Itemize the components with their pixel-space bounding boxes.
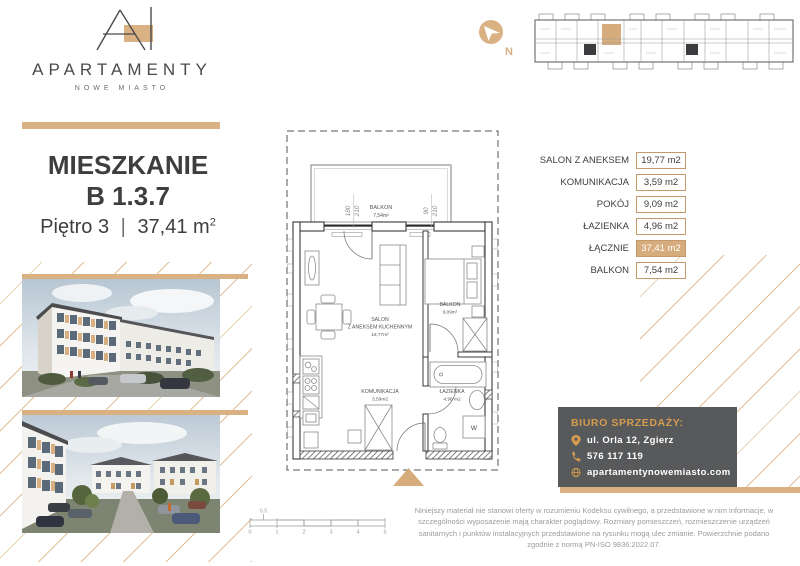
hallway-area: 3,59m2 [372,397,388,403]
sales-office-card: BIURO SPRZEDAŻY: ul. Orla 12, Zgierz 576… [558,407,737,487]
staircase-block [584,44,596,55]
compass-north-icon: N [472,12,518,60]
phone-icon [571,451,581,462]
window2-height-dim: 210 [432,205,439,217]
location-pin-icon [571,435,581,446]
bedroom-label: BALKON [439,302,460,308]
table-row: KOMUNIKACJA 3,59 m2 [520,174,686,191]
living-room-label-1: SALON [371,317,389,323]
scale-tick-0: 0 [248,530,251,536]
compass-north-label: N [505,46,513,58]
window2-width-dim: 90 [423,207,430,215]
room-label: ŁĄCZNIE [589,243,629,254]
balcony-area: 7,54m² [373,213,389,219]
room-label: BALKON [590,265,629,276]
flyer-page: APARTAMENTY NOWE MIASTO MIESZKANIE B 1.3… [0,0,800,566]
highlighted-unit [602,24,621,45]
title-divider: | [121,216,126,238]
window1-width-dim: 180 [345,205,352,216]
hallway-label: KOMUNIKACJA [361,389,399,395]
gold-divider [22,122,220,129]
sales-office-phone-line: 576 117 119 [571,451,737,462]
table-row-total: ŁĄCZNIE 37,41 m2 [520,240,686,257]
bedroom-area: 9,09m² [443,310,458,315]
brand-name: APARTAMENTY [20,60,224,80]
area-exponent: 2 [210,217,216,229]
entrance-marker-triangle [393,468,424,486]
table-row: BALKON 7,54 m2 [520,262,686,279]
scale-tick-2: 2 [302,530,305,536]
table-row: ŁAZIENKA 4,96 m2 [520,218,686,235]
building-render-photo-2 [22,415,220,533]
scale-bar: 0.5 0 1 2 3 4 5 [246,506,392,536]
floor-label: Piętro 3 [40,216,109,238]
bathroom-area: 4,96 m2 [443,397,461,403]
sales-office-heading: BIURO SPRZEDAŻY: [571,417,737,429]
living-room-area: 19,77m² [371,332,389,338]
balcony-label: BALKON [370,205,393,211]
brand-tagline: NOWE MIASTO [20,85,224,92]
sales-office-phone: 576 117 119 [587,451,643,462]
room-label: ŁAZIENKA [583,221,629,232]
floor-and-area: Piętro 3 | 37,41 m2 [8,216,248,239]
room-area-value: 4,96 m2 [636,218,686,235]
room-area-value: 37,41 m2 [636,240,686,257]
sales-office-website: apartamentynowemiasto.com [587,467,731,478]
listing-title-block: MIESZKANIE B 1.3.7 Piętro 3 | 37,41 m2 [8,150,248,239]
staircase-block [686,44,698,55]
building-render-photo-1 [22,279,220,397]
window1-height-dim: 210 [354,205,361,217]
apartment-floor-plan: BALKON 7,54m² [280,124,518,536]
listing-type: MIESZKANIE [8,150,248,181]
sales-office-address: ul. Orla 12, Zgierz [587,435,674,446]
room-area-value: 9,09 m2 [636,196,686,213]
bathroom-label: ŁAZIENKA [439,389,465,395]
building-key-plan [534,13,796,75]
scale-tick-5: 5 [383,530,386,536]
unit-number: B 1.3.7 [8,181,248,212]
legal-disclaimer: Niniejszy materiał nie stanowi oferty w … [408,505,780,550]
living-room-label-2: Z ANEKSEM KUCHENNYM [348,325,413,331]
unit-area: 37,41 m [137,216,209,238]
building-render-1 [22,279,220,397]
room-label: KOMUNIKACJA [560,177,629,188]
scale-half-label: 0.5 [260,509,268,515]
sales-office-website-line: apartamentynowemiasto.com [571,467,737,478]
building-render-2 [22,415,220,533]
room-area-value: 7,54 m2 [636,262,686,279]
table-row: POKÓJ 9,09 m2 [520,196,686,213]
room-area-value: 3,59 m2 [636,174,686,191]
table-row: SALON Z ANEKSEM 19,77 m2 [520,152,686,169]
sales-office-address-line: ul. Orla 12, Zgierz [571,435,737,446]
room-label: POKÓJ [597,199,629,210]
scale-tick-4: 4 [356,530,359,536]
scale-tick-3: 3 [329,530,332,536]
globe-icon [571,467,581,478]
room-area-table: SALON Z ANEKSEM 19,77 m2 KOMUNIKACJA 3,5… [520,152,686,284]
scale-tick-1: 1 [275,530,278,536]
brand-logo-block: APARTAMENTY NOWE MIASTO [20,6,224,92]
contact-gold-bar [560,487,800,493]
room-label: SALON Z ANEKSEM [540,155,629,166]
washer-label: W [471,425,478,432]
room-area-value: 19,77 m2 [636,152,686,169]
brand-monogram-icon [87,6,157,52]
